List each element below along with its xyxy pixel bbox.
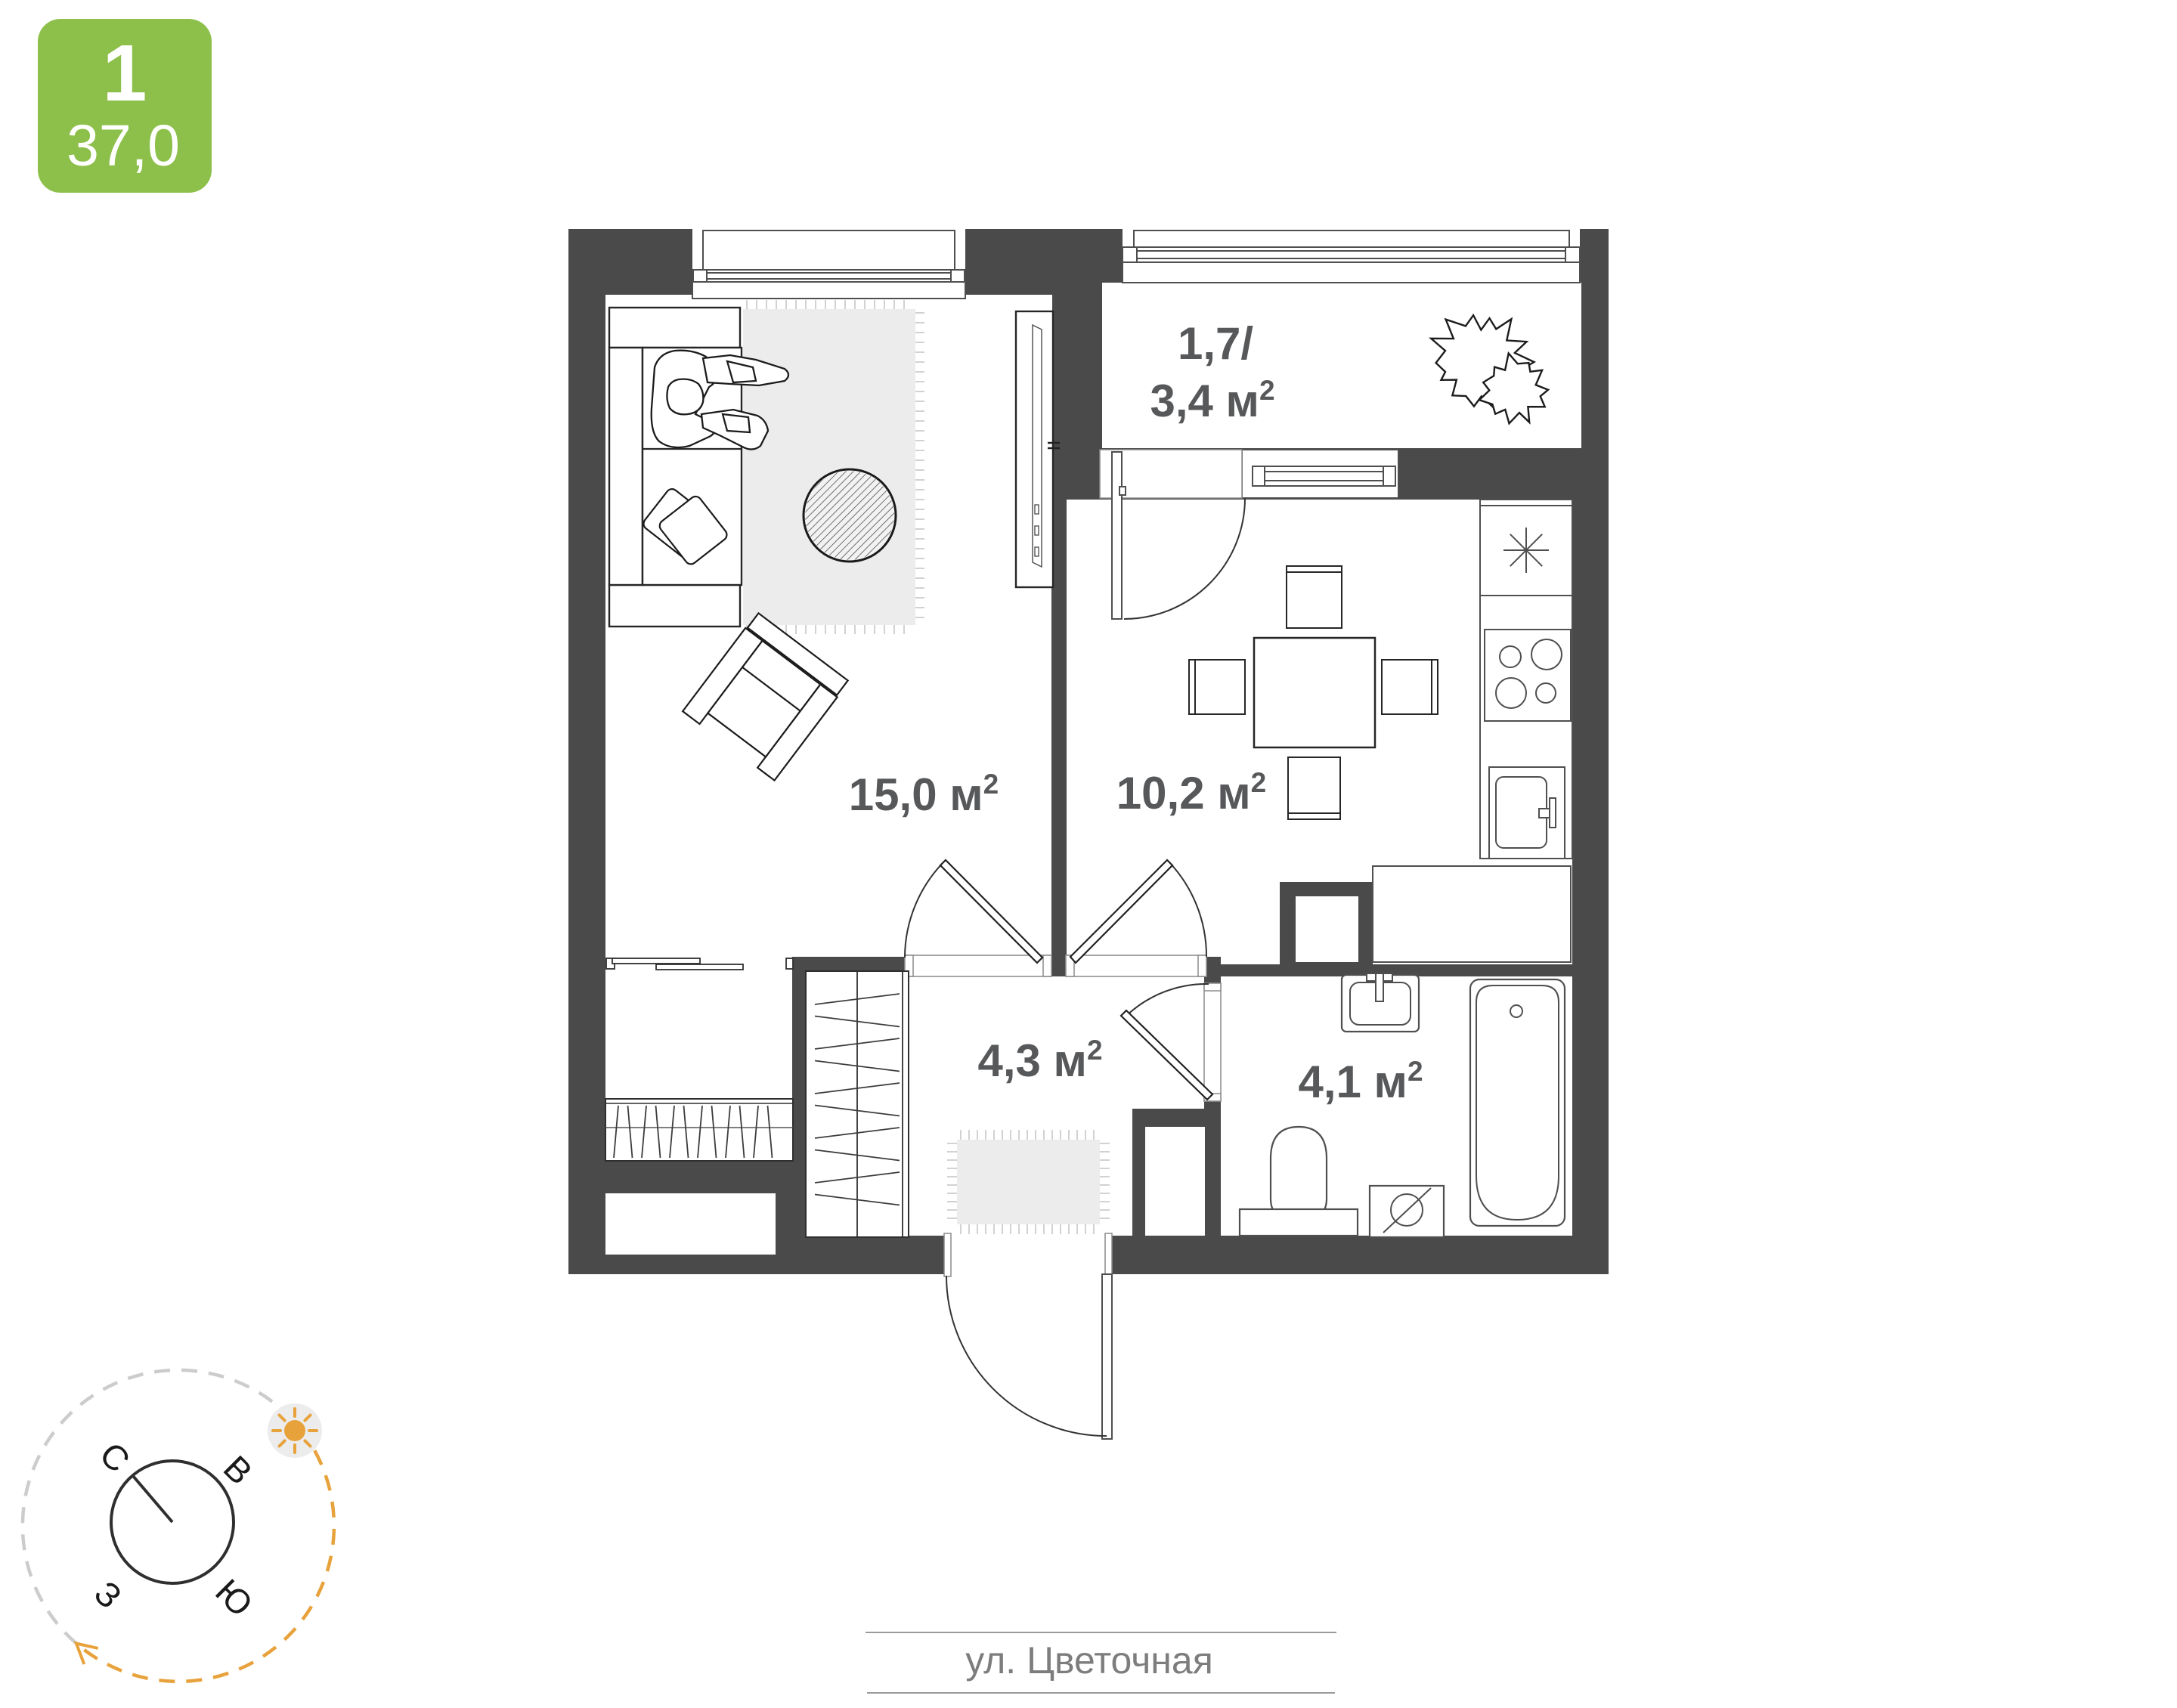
svg-text:1: 1 (103, 29, 147, 118)
svg-text:15,0 м2: 15,0 м2 (849, 769, 999, 820)
svg-text:4,3 м2: 4,3 м2 (977, 1035, 1102, 1086)
svg-text:1,7/: 1,7/ (1178, 318, 1253, 369)
svg-text:3,4 м2: 3,4 м2 (1150, 375, 1274, 426)
svg-text:4,1 м2: 4,1 м2 (1298, 1056, 1423, 1107)
svg-text:37,0: 37,0 (67, 113, 180, 178)
svg-text:ул. Цветочная: ул. Цветочная (965, 1639, 1213, 1682)
svg-text:10,2 м2: 10,2 м2 (1116, 767, 1266, 818)
